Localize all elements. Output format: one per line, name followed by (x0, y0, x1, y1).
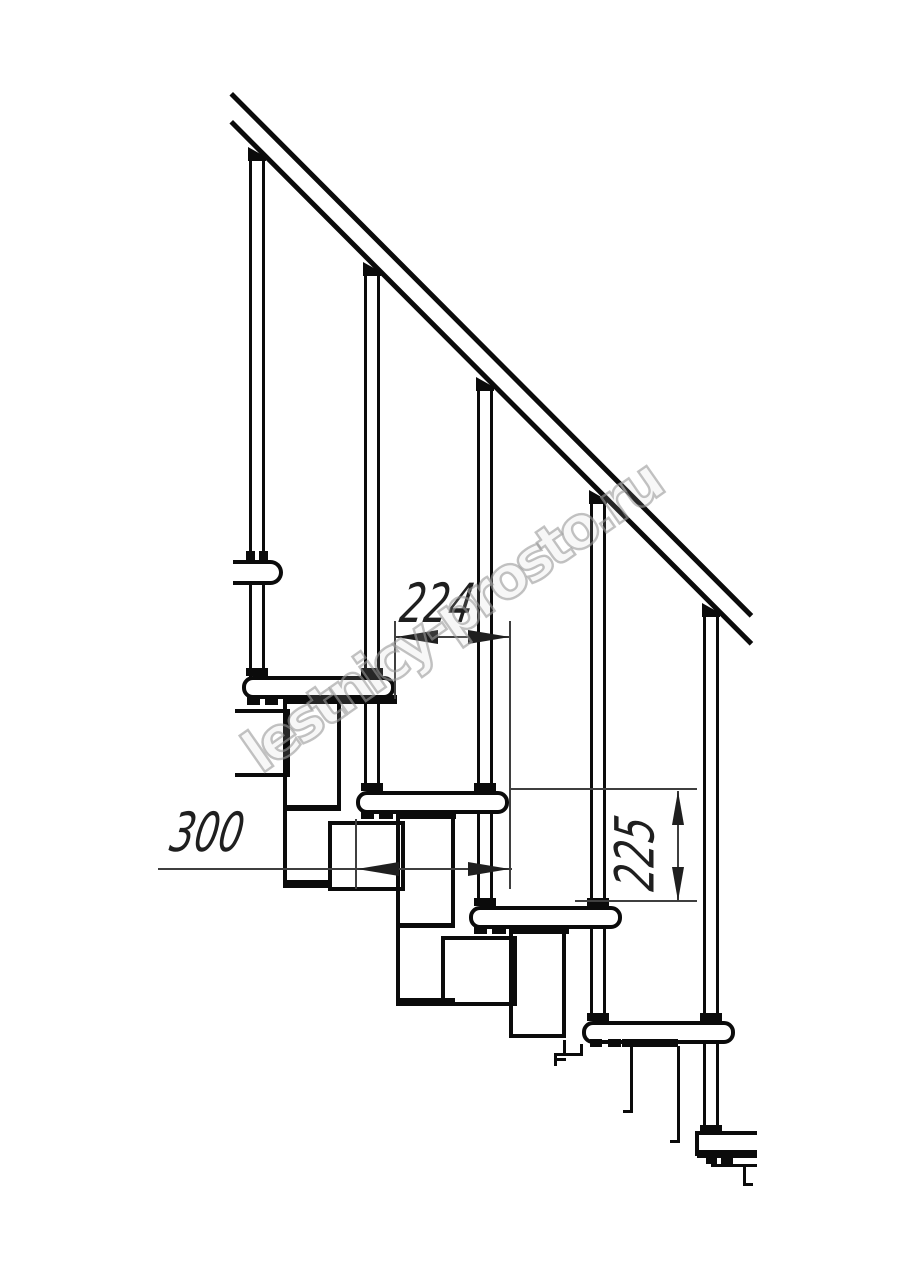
extension-line (511, 788, 697, 790)
staircase-technical-drawing: 224 300 225 lestnicy-prosto.ru (0, 0, 914, 1280)
baluster-4 (590, 499, 606, 1015)
dimension-line-depth (158, 868, 512, 870)
baluster-collar (587, 1013, 609, 1021)
terminal-step-top (695, 1131, 757, 1135)
support-module-box (441, 936, 517, 1006)
dimension-label-rise: 225 (581, 798, 691, 908)
extension-line (355, 819, 357, 889)
baluster-collar (474, 898, 496, 906)
support-module-box (509, 929, 566, 1038)
tread-cleat (706, 1157, 717, 1164)
tread-underside (396, 810, 456, 819)
cut-line (677, 1046, 680, 1143)
cut-line (554, 1058, 566, 1061)
baluster-collar (700, 1013, 722, 1021)
baluster-5 (703, 612, 719, 1128)
tread-cleat (721, 1157, 733, 1164)
module-flange (396, 927, 441, 1006)
tread-cleat (492, 925, 506, 934)
cut-line (670, 1140, 680, 1143)
tread-underside (509, 925, 569, 934)
tread-cleat (590, 1039, 602, 1047)
support-module-box (328, 821, 405, 891)
rail-stub-bracket (233, 560, 283, 585)
dimension-label-depth: 300 (166, 806, 248, 860)
baluster-collar (361, 783, 383, 791)
tread-underside (622, 1039, 678, 1047)
module-flange (283, 811, 328, 888)
baluster-collar (474, 783, 496, 791)
cut-line (630, 1046, 633, 1113)
tread-cleat (379, 810, 393, 819)
cut-line (711, 1164, 757, 1167)
cut-line (743, 1183, 753, 1186)
cut-line (623, 1110, 633, 1113)
baluster-collar (246, 668, 268, 676)
arrowhead-right (468, 862, 510, 876)
cut-line (563, 1040, 566, 1053)
cut-line (554, 1053, 583, 1056)
arrowhead-left (357, 862, 399, 876)
tread-cleat (247, 695, 260, 705)
tread-cleat (361, 810, 374, 819)
baluster-1 (249, 158, 265, 678)
tread-cleat (608, 1039, 621, 1047)
module-flange (441, 998, 455, 1006)
extension-line (509, 621, 511, 889)
tread-cleat (474, 925, 487, 934)
